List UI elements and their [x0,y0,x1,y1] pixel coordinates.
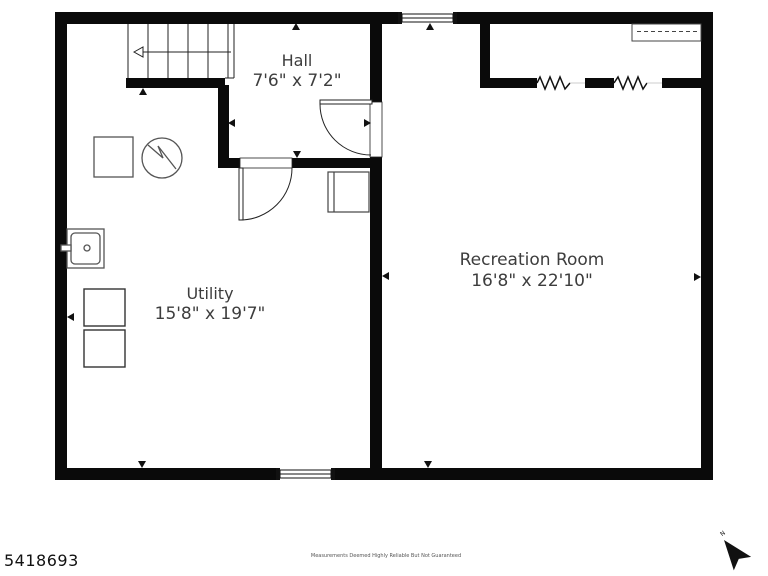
utility-room-name: Utility [155,284,266,304]
closet-rod-icon [632,24,701,41]
wall-bottom [55,468,713,480]
wall-notch-seg3 [662,78,701,88]
appliance-icon [328,172,369,212]
door-swing-icon [240,168,292,220]
utility-label: Utility 15'8" x 19'7" [155,284,266,325]
dryer-icon [84,330,125,367]
sink-icon [61,229,104,268]
wall-divider-upper [370,24,382,102]
wall-tick-icon [67,313,74,321]
wall-tick-icon [426,23,434,30]
window-jamb [453,12,457,24]
hall-room-dims: 7'6" x 7'2" [252,71,341,92]
door-utility [239,158,292,220]
wall-tick-icon [228,119,235,127]
disclaimer-text: Measurements Deemed Highly Reliable But … [311,553,461,559]
recreation-room-dims: 16'8" x 22'10" [460,271,605,292]
wall-divider-lower [370,157,382,468]
window-top [398,12,457,24]
furnace-icon [94,137,133,177]
recreation-room-label: Recreation Room 16'8" x 22'10" [460,250,605,293]
utility-room-dims: 15'8" x 19'7" [155,304,266,325]
door-opening [370,102,382,157]
compass-arrow [715,533,751,570]
wall-tick-icon [694,273,701,281]
wall-tick-icon [138,461,146,468]
window-jamb [276,468,280,480]
wall-under-stairs [126,78,225,88]
washer-icon [84,289,125,326]
wall-notch-seg1 [480,78,537,88]
door-leaf [320,100,372,104]
window-jamb [398,12,402,24]
staircase-icon [128,24,234,78]
listing-id: 5418693 [4,551,79,570]
wall-break-icon [537,77,570,89]
compass-label: N [719,530,727,538]
window-bottom [276,468,335,480]
wall-tick-icon [292,23,300,30]
floorplan-page: N Hall 7'6" x 7'2" Utility 15'8" x 19'7"… [0,0,768,576]
window-jamb [331,468,335,480]
door-swing-icon [320,104,371,155]
door-leaf [239,168,243,220]
water-heater-bolt [148,145,176,169]
floor-plan-canvas: N [0,0,768,576]
wall-tick-icon [382,272,389,280]
wall-right [701,12,713,480]
wall-top [55,12,713,24]
door-hall [320,100,382,157]
wall-tick-markers [67,23,701,468]
wall-break-icon [614,77,647,89]
stair-arrowhead-icon [134,47,143,57]
stair-treads [128,24,234,78]
wall-tick-icon [293,151,301,158]
faucet-icon [61,245,71,251]
wall-tick-icon [139,88,147,95]
hall-room-name: Hall [252,51,341,71]
door-opening [240,158,292,168]
recreation-room-name: Recreation Room [460,250,605,271]
wall-tick-icon [424,461,432,468]
wall-notch-seg2 [585,78,614,88]
hall-label: Hall 7'6" x 7'2" [252,51,341,92]
wall-notch-vertical [480,24,490,84]
water-heater-icon [142,138,182,178]
compass-north-icon: N [710,526,751,570]
wall-hall-left [218,85,229,168]
